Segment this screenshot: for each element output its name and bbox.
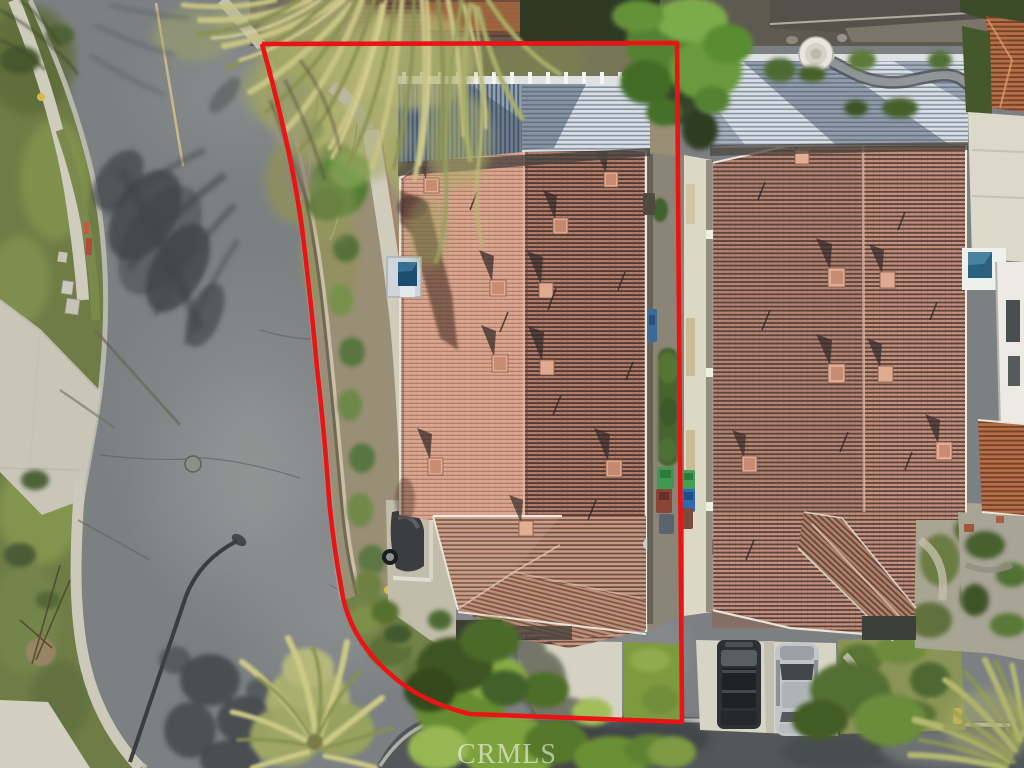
- svg-text:CRMLS: CRMLS: [457, 739, 557, 768]
